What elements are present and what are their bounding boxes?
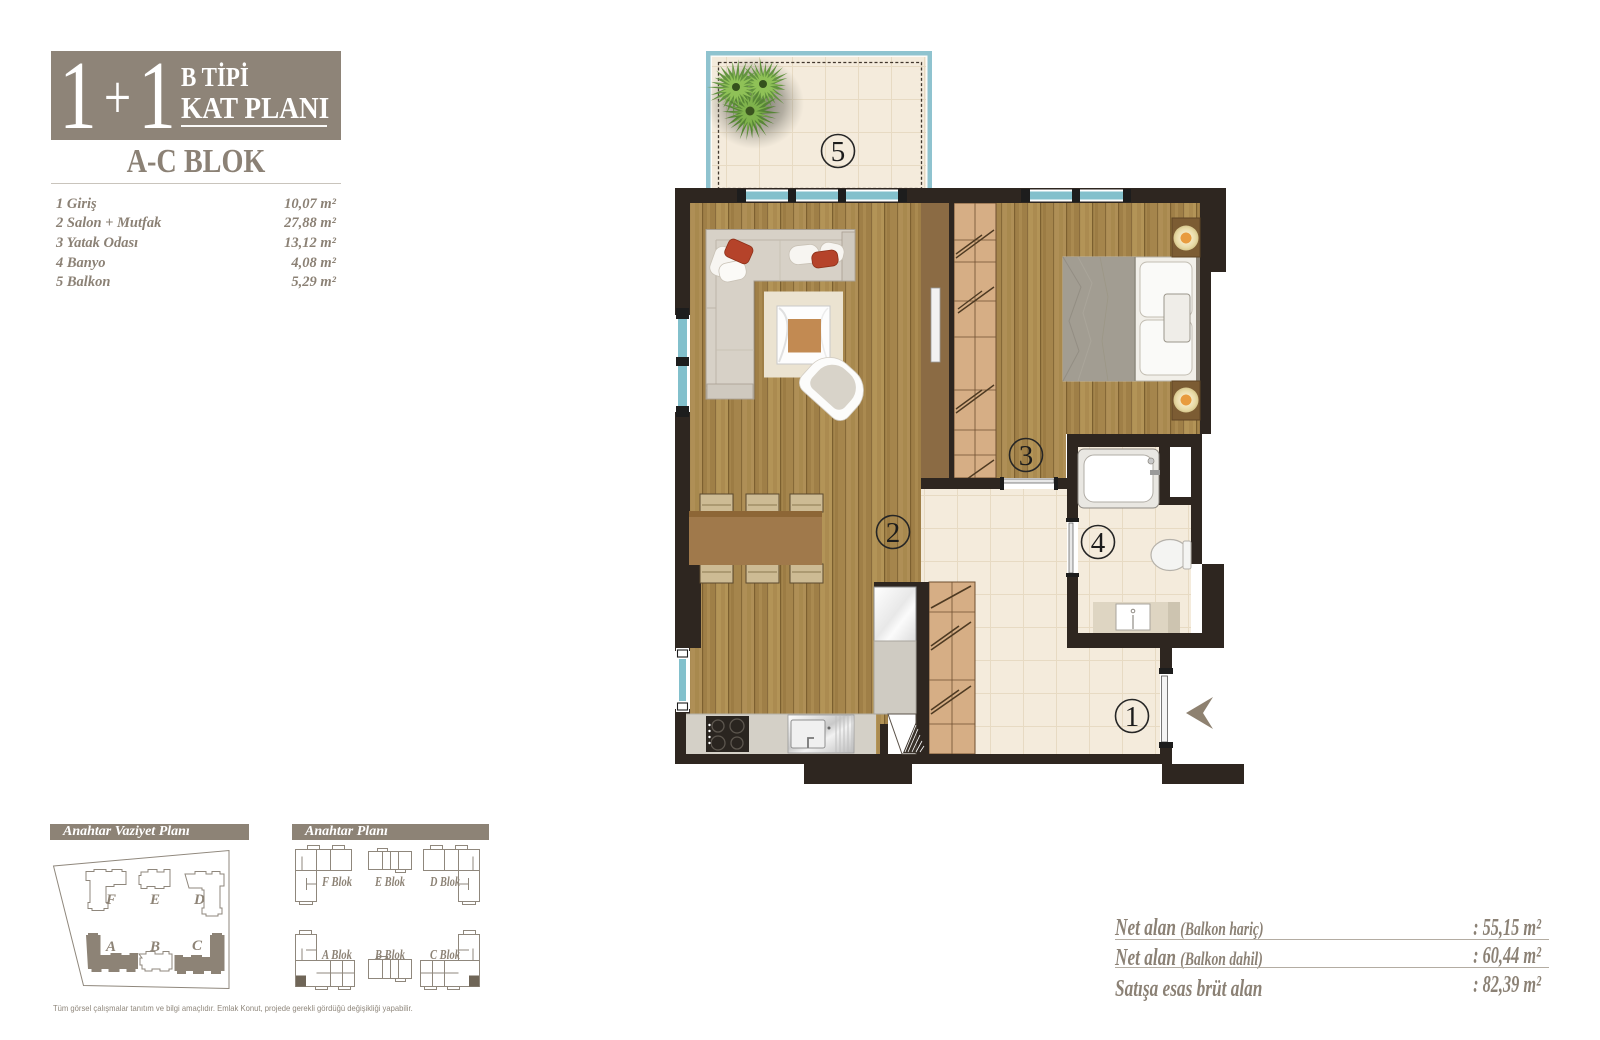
- svg-text:B: B: [149, 939, 160, 955]
- svg-text:D Blok: D Blok: [429, 874, 460, 889]
- svg-text:C: C: [192, 938, 203, 954]
- svg-text:F: F: [105, 892, 116, 908]
- svg-text:D: D: [193, 892, 205, 908]
- svg-text:E: E: [149, 892, 160, 908]
- svg-text:3: 3: [1019, 440, 1034, 472]
- svg-text:2: 2: [886, 517, 901, 549]
- svg-text:5: 5: [831, 136, 846, 168]
- svg-text:4: 4: [1091, 527, 1106, 559]
- svg-text:B Blok: B Blok: [374, 947, 405, 962]
- svg-text:1: 1: [1125, 701, 1140, 733]
- svg-text:C Blok: C Blok: [430, 947, 460, 962]
- svg-text:A: A: [105, 939, 116, 955]
- svg-text:F Blok: F Blok: [321, 874, 352, 889]
- svg-text:A Blok: A Blok: [321, 947, 352, 962]
- svg-text:E Blok: E Blok: [374, 874, 405, 889]
